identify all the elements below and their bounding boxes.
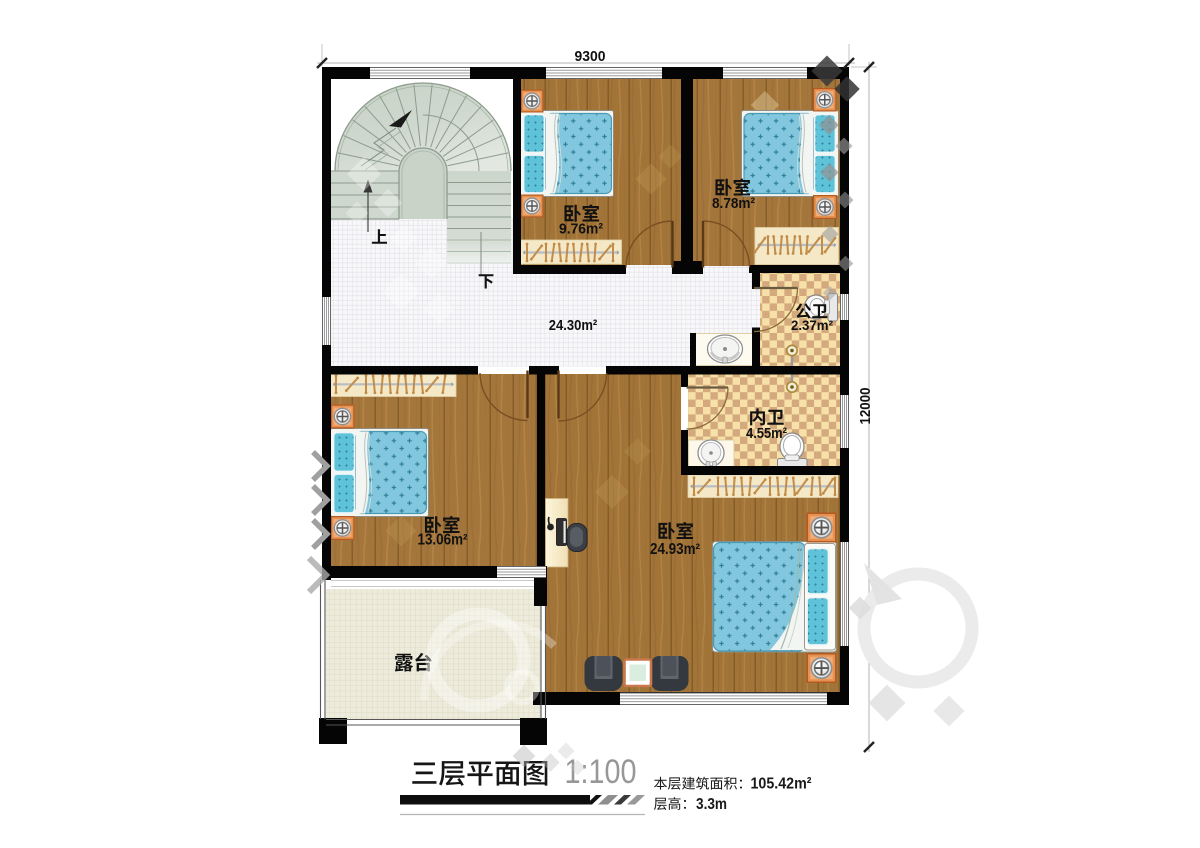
svg-text:24.93m²: 24.93m² (650, 541, 700, 558)
svg-text:4.55m²: 4.55m² (746, 425, 787, 442)
svg-text:9300: 9300 (575, 48, 606, 65)
svg-text:24.30m²: 24.30m² (549, 317, 598, 334)
svg-text:2.37m²: 2.37m² (791, 318, 833, 333)
svg-text:9.76m²: 9.76m² (559, 221, 603, 238)
svg-text:12000: 12000 (857, 388, 874, 425)
svg-text:105.42m²: 105.42m² (751, 776, 812, 793)
svg-text:13.06m²: 13.06m² (418, 532, 468, 549)
svg-text:8.78m²: 8.78m² (712, 195, 755, 212)
svg-text:3.3m: 3.3m (696, 796, 727, 813)
